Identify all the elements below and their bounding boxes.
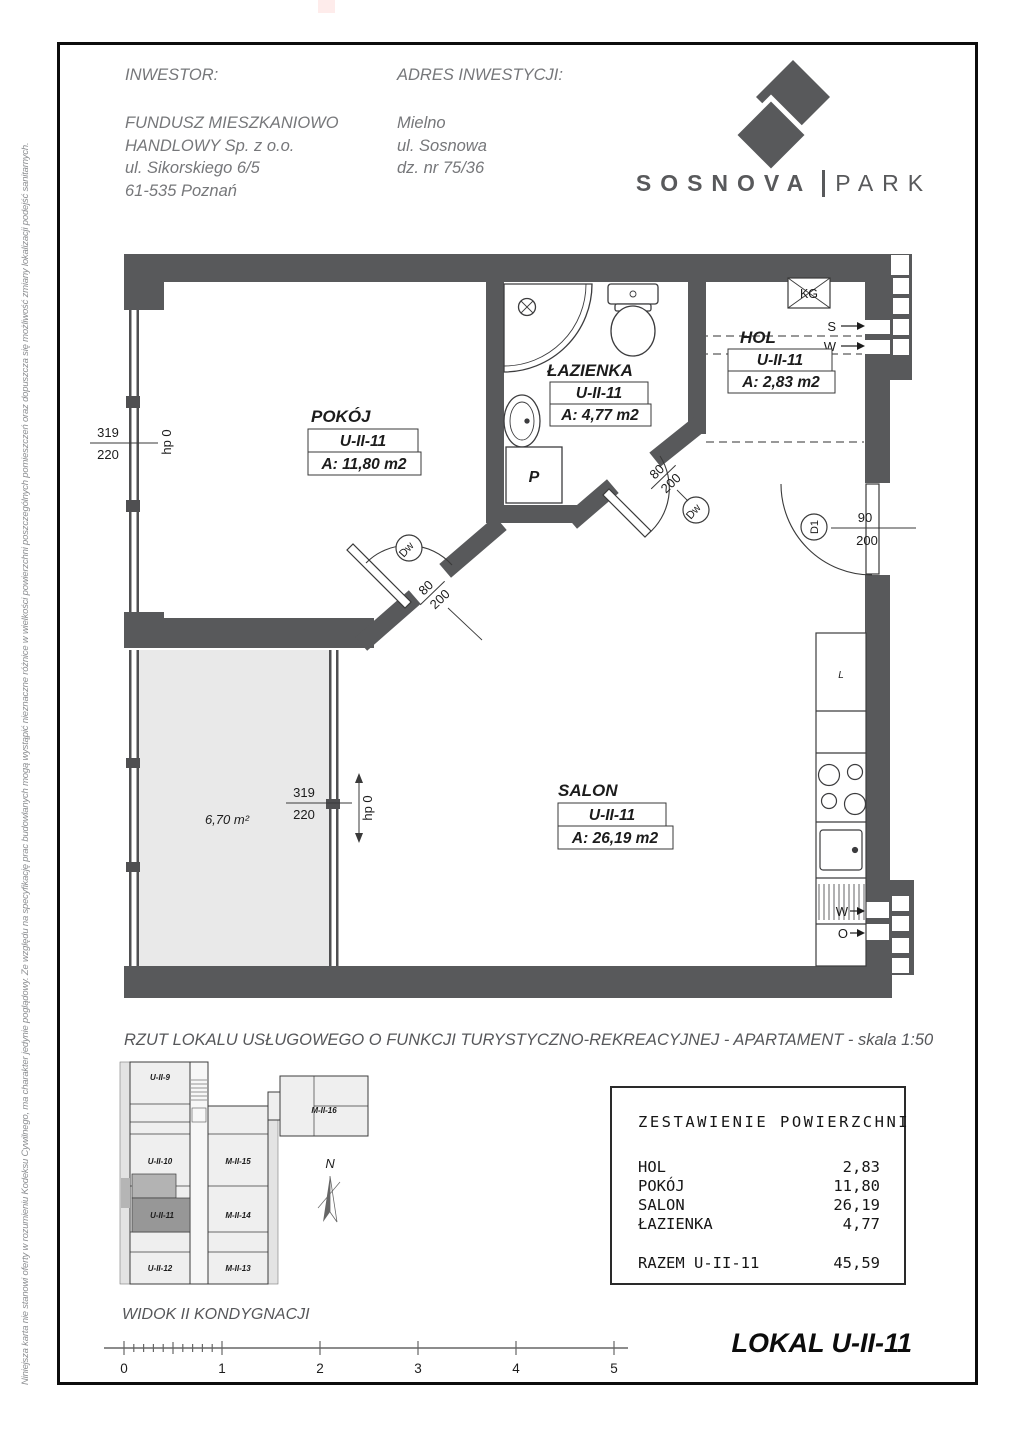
north-arrow-icon: N: [318, 1156, 340, 1222]
unit-label: M-II-14: [225, 1211, 251, 1220]
room-label-salon: SALON U-II-11 A: 26,19 m2: [558, 781, 673, 849]
cooktop-burner-icon: [819, 765, 840, 786]
scale-numbers: 0 1 2 3 4 5: [120, 1361, 618, 1376]
svg-text:HOL: HOL: [740, 328, 776, 347]
door-size-h: 200: [856, 533, 878, 548]
brand-divider: [822, 170, 825, 197]
investor-line: 61-535 Poznań: [125, 180, 339, 203]
arrow-icon: [355, 833, 363, 843]
brand-left: SOSNOVA: [636, 170, 812, 197]
plan-caption: RZUT LOKALU USŁUGOWEGO O FUNKCJI TURYSTY…: [124, 1031, 933, 1050]
unit-label: M-II-16: [311, 1106, 337, 1115]
svg-text:U-II-11: U-II-11: [589, 807, 635, 824]
room-label-hol: HOL U-II-11 A: 2,83 m2: [728, 328, 835, 393]
site-address-label: ADRES INWESTYCJI:: [397, 66, 563, 85]
svg-text:W: W: [836, 904, 849, 919]
highlight-balcony: [121, 1178, 130, 1208]
vent-arrow-s: S: [827, 319, 865, 334]
door-bathroom: Dw 80 200: [603, 454, 709, 537]
table-row: HOL 2,83: [638, 1158, 880, 1177]
address-line: Mielno: [397, 112, 487, 135]
legal-disclaimer: Niniejsza karta nie stanowi oferty w roz…: [20, 42, 36, 1385]
svg-text:220: 220: [293, 807, 315, 822]
kg-label: KG: [800, 287, 818, 301]
svg-text:U-II-11: U-II-11: [576, 385, 622, 402]
door-size-w: 90: [858, 510, 872, 525]
svg-text:A: 4,77 m2: A: 4,77 m2: [560, 407, 639, 424]
unit-label: M-II-13: [225, 1264, 251, 1273]
building-blocks: [130, 1062, 368, 1284]
fridge-label: L: [838, 670, 844, 681]
table-title: ZESTAWIENIE POWIERZCHNI: [638, 1113, 880, 1131]
svg-text:SALON: SALON: [558, 781, 618, 800]
unit-label: M-II-15: [225, 1157, 251, 1166]
door-size: 80 200: [409, 570, 456, 617]
svg-text:O: O: [838, 926, 848, 941]
cooktop-burner-icon: [822, 794, 837, 809]
scale-bar: 0 1 2 3 4 5: [100, 1336, 640, 1380]
svg-text:POKÓJ: POKÓJ: [311, 407, 371, 426]
svg-text:5: 5: [610, 1361, 618, 1376]
svg-text:0: 0: [120, 1361, 128, 1376]
svg-text:319: 319: [293, 785, 315, 800]
svg-text:S: S: [827, 319, 836, 334]
logo-chevrons-icon: [628, 52, 940, 170]
svg-text:U-II-11: U-II-11: [757, 352, 803, 369]
toilet-bowl-icon: [611, 306, 655, 356]
area-summary-table: ZESTAWIENIE POWIERZCHNI HOL 2,83 POKÓJ 1…: [610, 1086, 906, 1285]
site-address: Mielno ul. Sosnowa dz. nr 75/36: [397, 112, 487, 180]
investor-line: ul. Sikorskiego 6/5: [125, 157, 339, 180]
north-label: N: [325, 1156, 335, 1171]
arrow-icon: [355, 773, 363, 783]
shower-icon: [504, 284, 592, 372]
svg-text:2: 2: [316, 1361, 324, 1376]
unit-label: U-II-11: [150, 1211, 174, 1220]
svg-text:hp 0: hp 0: [159, 429, 174, 454]
address-line: ul. Sosnowa: [397, 135, 487, 158]
table-row: ŁAZIENKA 4,77: [638, 1215, 880, 1234]
investor-label: INWESTOR:: [125, 66, 218, 85]
svg-text:1: 1: [218, 1361, 226, 1376]
investor-line: HANDLOWY Sp. z o.o.: [125, 135, 339, 158]
door-entry: D1 90 200: [781, 484, 916, 575]
svg-text:3: 3: [414, 1361, 422, 1376]
table-row: SALON 26,19: [638, 1196, 880, 1215]
door-code: D1: [809, 520, 821, 534]
sosnova-park-logo: SOSNOVA PARK: [628, 52, 940, 202]
unit-label: U-II-9: [150, 1073, 171, 1082]
svg-text:U-II-11: U-II-11: [340, 433, 386, 450]
svg-text:ŁAZIENKA: ŁAZIENKA: [546, 361, 633, 380]
svg-text:4: 4: [512, 1361, 520, 1376]
room-label-lazienka: ŁAZIENKA U-II-11 A: 4,77 m2: [546, 361, 651, 426]
table-total-row: RAZEM U-II-11 45,59: [638, 1254, 880, 1273]
floor-plan: 6,70 m²: [100, 230, 930, 1020]
kg-symbol: KG: [788, 278, 830, 308]
cooktop-burner-icon: [845, 794, 866, 815]
door-leaf-icon: [866, 484, 879, 574]
investor-address: FUNDUSZ MIESZKANIOWO HANDLOWY Sp. z o.o.…: [125, 112, 339, 202]
storey-view-title: WIDOK II KONDYGNACJI: [122, 1306, 310, 1324]
red-marker: [318, 0, 335, 13]
svg-text:A: 2,83 m2: A: 2,83 m2: [741, 374, 820, 391]
storey-overview: U-II-9 U-II-10 U-II-11 U-II-12 M-II-15 M…: [118, 1056, 418, 1300]
arrow-icon: [857, 342, 865, 350]
brand-right: PARK: [835, 170, 932, 197]
balcony-area-label: 6,70 m²: [205, 812, 250, 827]
address-line: dz. nr 75/36: [397, 157, 487, 180]
svg-text:220: 220: [97, 447, 119, 462]
highlight-hall: [132, 1174, 176, 1198]
svg-text:A: 26,19 m2: A: 26,19 m2: [571, 830, 659, 847]
investor-line: FUNDUSZ MIESZKANIOWO: [125, 112, 339, 135]
cooktop-burner-icon: [848, 765, 863, 780]
svg-text:hp 0: hp 0: [360, 795, 375, 820]
arrow-icon: [857, 322, 865, 330]
door-leaf-icon: [603, 489, 651, 537]
logo-wordmark: SOSNOVA PARK: [628, 170, 940, 197]
table-row: POKÓJ 11,80: [638, 1177, 880, 1196]
room-label-pokoj: POKÓJ U-II-11 A: 11,80 m2: [308, 407, 421, 475]
svg-text:A: 11,80 m2: A: 11,80 m2: [320, 456, 406, 473]
svg-text:319: 319: [97, 425, 119, 440]
unit-title: LOKAL U-II-11: [690, 1328, 912, 1359]
unit-label: U-II-12: [148, 1264, 173, 1273]
unit-label: U-II-10: [148, 1157, 173, 1166]
washer-label: P: [529, 469, 540, 486]
window-dim-pokoj: 319 220 hp 0: [90, 425, 174, 462]
